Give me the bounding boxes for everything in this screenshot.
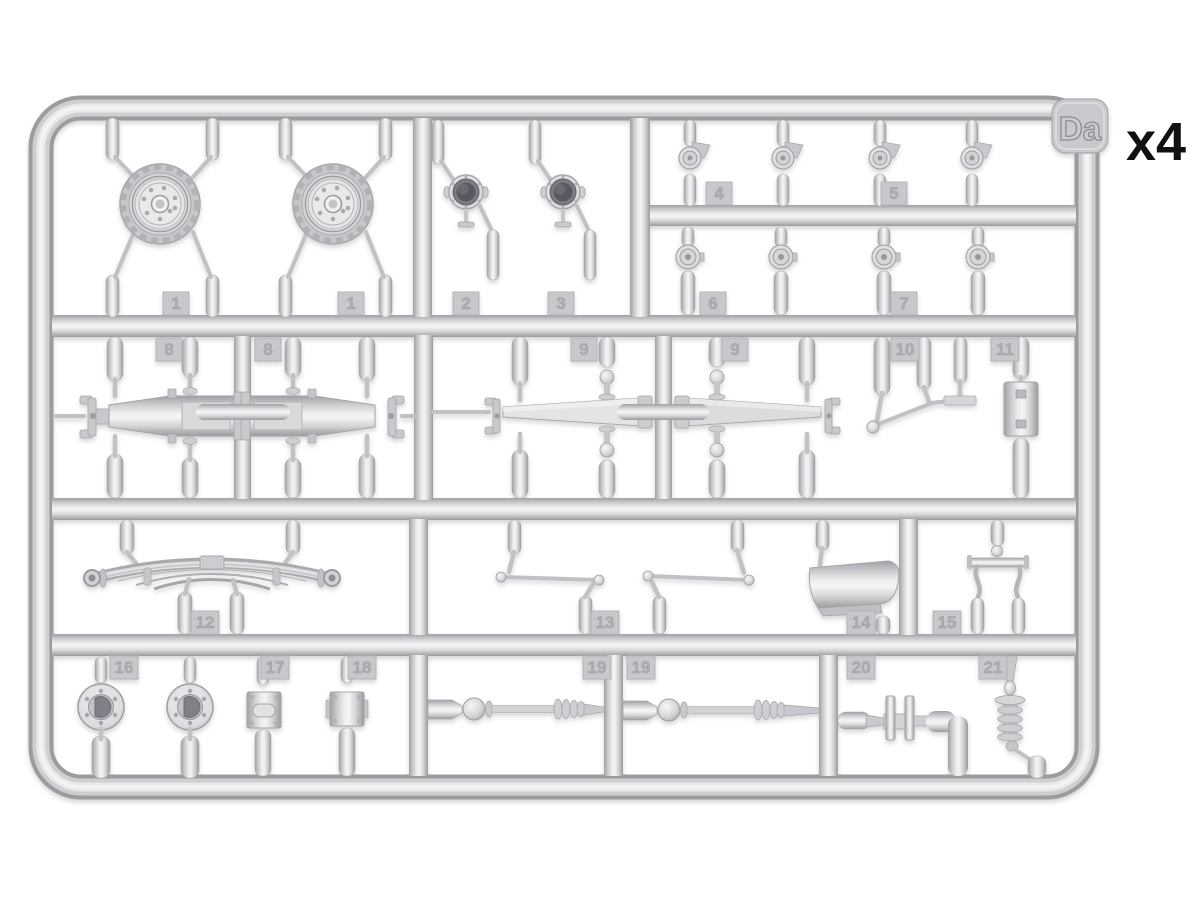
part-tag-number: 8 <box>263 340 272 359</box>
runner-h1 <box>52 315 1076 337</box>
part-tag-number: 15 <box>938 613 957 632</box>
runner-v-top-a <box>413 118 432 317</box>
part-tag-number: 3 <box>556 294 565 313</box>
part-tag-number: 20 <box>852 658 871 677</box>
runner-h2 <box>52 498 1076 520</box>
part-tag: 17 <box>261 656 289 679</box>
tie-rod-parts-13 <box>496 520 754 634</box>
bracket-part <box>679 120 710 206</box>
sprue-code-text: Da <box>1059 110 1102 147</box>
runner-v-top-b <box>630 118 650 317</box>
part-tag-number: 16 <box>115 658 134 677</box>
part-tag-number: 19 <box>632 658 651 677</box>
part-tag: 10 <box>891 338 919 361</box>
flat-axle-assembly-9 <box>433 337 840 498</box>
part-tag: 6 <box>700 292 726 315</box>
part-tag: 5 <box>881 182 907 205</box>
part-tag: 7 <box>891 292 917 315</box>
part-tag: 1 <box>163 292 189 315</box>
part-tag: 8 <box>156 338 182 361</box>
bracket-part <box>772 120 803 206</box>
part-tag-number: 10 <box>896 340 915 359</box>
fork-part-20 <box>838 696 968 776</box>
part-tag: 3 <box>548 292 574 315</box>
road-wheel-part-1b <box>279 118 392 317</box>
flange-part-16b <box>167 657 213 778</box>
part-tag: 20 <box>847 656 875 679</box>
quantity-label: x4 <box>1126 112 1186 172</box>
part-tag: 13 <box>591 611 619 634</box>
part-tag: 15 <box>933 611 961 634</box>
part-tag: 4 <box>706 182 732 205</box>
hub-housing-part-3 <box>529 120 596 280</box>
part-tag-number: 21 <box>984 658 1003 677</box>
part-tag-number: 4 <box>714 184 724 203</box>
part-tag-number: 9 <box>730 340 739 359</box>
part-tag: 9 <box>571 338 597 361</box>
part-tag: 11 <box>991 338 1019 361</box>
part-tag-number: 13 <box>596 613 615 632</box>
hub-housing-part-2 <box>432 120 499 280</box>
runner-v-row2 <box>414 335 433 500</box>
part-tag: 21 <box>979 656 1007 679</box>
part-tag: 19 <box>627 656 655 679</box>
part-tag-number: 1 <box>346 294 355 313</box>
part-tag: 18 <box>348 656 376 679</box>
part-tag-number: 7 <box>899 294 908 313</box>
part-tag: 1 <box>338 292 364 315</box>
runner-v-row4-c <box>819 655 838 776</box>
part-tag: 16 <box>110 656 138 679</box>
part-tag: 2 <box>453 292 479 315</box>
part-tag-number: 5 <box>889 184 898 203</box>
part-tag-number: 19 <box>588 658 607 677</box>
runner-v-row3-b <box>899 519 918 635</box>
bent-lever-part-10 <box>867 337 976 433</box>
bracket-part <box>961 120 992 206</box>
runner-h1b <box>641 205 1076 226</box>
part-tag-number: 1 <box>171 294 180 313</box>
round-cap-part <box>769 227 797 315</box>
part-tag-number: 8 <box>164 340 173 359</box>
part-tag-number: 6 <box>708 294 717 313</box>
driveshaft-part-19a <box>428 698 604 720</box>
runner-v-row3-a <box>409 519 428 635</box>
part-tag-number: 12 <box>196 613 215 632</box>
shackle-link-part-15 <box>967 520 1029 634</box>
part-tag-number: 18 <box>353 658 372 677</box>
part-tag-number: 9 <box>579 340 588 359</box>
part-tag-number: 2 <box>461 294 470 313</box>
part-tag: 9 <box>722 338 748 361</box>
road-wheel-part-1a <box>106 118 219 317</box>
part-tag: 12 <box>191 611 219 634</box>
part-tag-number: 14 <box>852 613 871 632</box>
part-tag-number: 11 <box>996 340 1014 359</box>
runner-h3 <box>52 634 1076 656</box>
part-tag: 8 <box>255 338 281 361</box>
runner-v-row4-a <box>409 655 428 776</box>
driveshaft-part-19b <box>623 699 819 721</box>
round-cap-part <box>966 227 994 315</box>
part-tag-number: 17 <box>266 658 285 677</box>
sprue-code-tag: Da <box>1052 99 1108 153</box>
part-tag: 19 <box>583 656 611 679</box>
sprue-photo: 1 1 2 3 4 5 6 7 8 8 9 9 10 11 12 13 14 1… <box>0 0 1200 900</box>
part-tag: 14 <box>847 611 875 634</box>
